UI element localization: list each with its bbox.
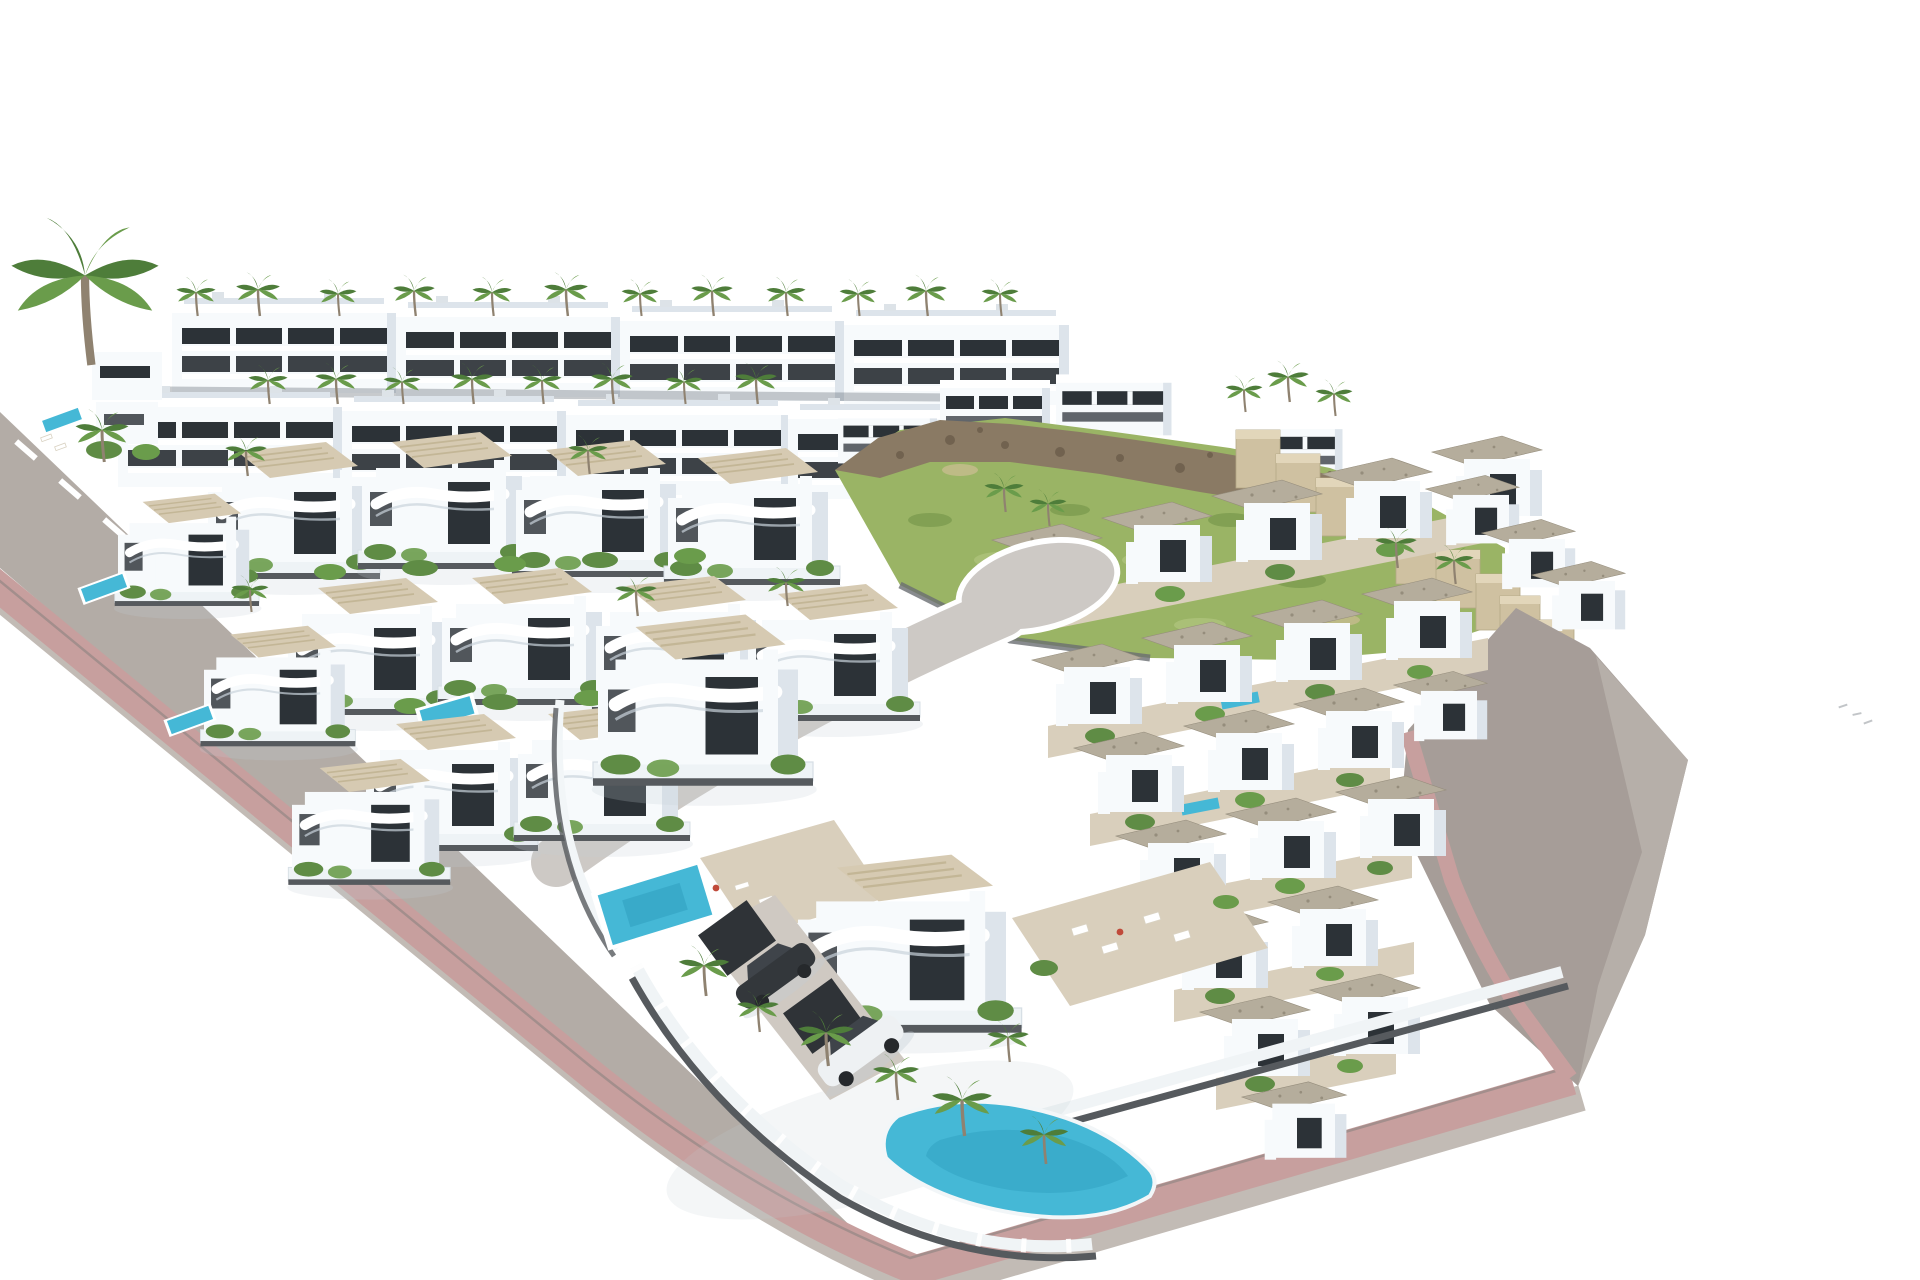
- person: [1117, 929, 1124, 936]
- hilltop-house: [1056, 374, 1172, 435]
- apartment-block: [396, 296, 621, 397]
- apartment-block: [620, 300, 845, 401]
- person: [713, 885, 720, 892]
- small-houses-left: [86, 352, 162, 460]
- scene-render: [0, 0, 1920, 1280]
- render-canvas: [0, 0, 1920, 1280]
